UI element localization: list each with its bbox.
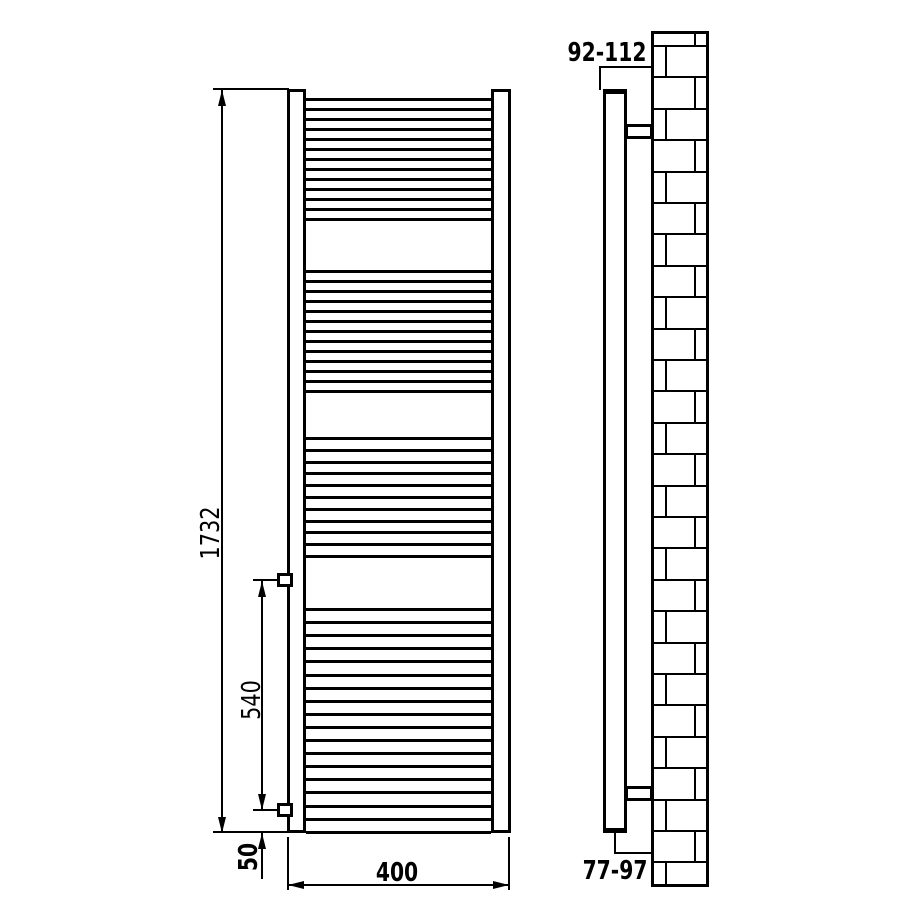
brick-course-line — [654, 233, 706, 235]
brick-joint-line — [665, 233, 667, 265]
radiator-installation-drawing: 1732 540 50 400 — [0, 0, 921, 921]
brick-course-line — [654, 547, 706, 549]
brick-course-line — [654, 453, 706, 455]
brick-course-line — [654, 642, 706, 644]
upper-bracket-side — [625, 124, 653, 139]
leader-line-vertical — [599, 66, 601, 90]
wall-clearance-bottom-label: 77-97 — [583, 858, 648, 884]
brick-joint-line — [694, 830, 696, 861]
brick-joint-line — [665, 547, 667, 579]
brick-joint-line — [694, 516, 696, 547]
brick-joint-line — [665, 861, 667, 884]
brick-joint-line — [694, 704, 696, 736]
brick-joint-line — [694, 390, 696, 422]
brick-joint-line — [694, 265, 696, 296]
brick-joint-line — [665, 108, 667, 139]
brick-course-line — [654, 76, 706, 78]
brick-course-line — [654, 108, 706, 110]
brick-joint-line — [665, 673, 667, 704]
brick-course-line — [654, 171, 706, 173]
brick-joint-line — [694, 76, 696, 108]
brick-joint-line — [694, 202, 696, 233]
brick-course-line — [654, 736, 706, 738]
brick-course-line — [654, 328, 706, 330]
brick-course-line — [654, 202, 706, 204]
brick-joint-line — [694, 579, 696, 610]
brick-course-line — [654, 704, 706, 706]
brick-course-line — [654, 45, 706, 47]
brick-course-line — [654, 390, 706, 392]
brick-course-line — [654, 799, 706, 801]
lower-bracket-side — [625, 786, 653, 801]
brick-joint-line — [665, 736, 667, 767]
brick-joint-line — [665, 171, 667, 202]
brick-course-line — [654, 516, 706, 518]
brick-joint-line — [694, 453, 696, 485]
brick-joint-line — [665, 485, 667, 516]
brick-joint-line — [665, 422, 667, 453]
brick-joint-line — [665, 45, 667, 76]
brick-course-line — [654, 861, 706, 863]
brick-course-line — [654, 579, 706, 581]
side-view: 92-112 77-97 — [0, 0, 921, 921]
brick-course-line — [654, 485, 706, 487]
brick-joint-line — [665, 359, 667, 390]
brick-joint-line — [694, 328, 696, 359]
brick-joint-line — [694, 34, 696, 45]
brick-joint-line — [694, 139, 696, 171]
brick-course-line — [654, 359, 706, 361]
radiator-profile — [603, 89, 627, 833]
brick-joint-line — [694, 642, 696, 673]
wall — [651, 31, 709, 887]
brick-joint-line — [665, 799, 667, 830]
brick-course-line — [654, 422, 706, 424]
brick-course-line — [654, 610, 706, 612]
brick-course-line — [654, 296, 706, 298]
leader-line-vertical — [614, 833, 616, 854]
brick-joint-line — [694, 767, 696, 799]
brick-course-line — [654, 830, 706, 832]
brick-joint-line — [665, 610, 667, 642]
leader-line-horizontal — [614, 852, 653, 854]
brick-course-line — [654, 139, 706, 141]
wall-clearance-top-label: 92-112 — [568, 40, 647, 66]
brick-course-line — [654, 767, 706, 769]
brick-course-line — [654, 673, 706, 675]
brick-joint-line — [665, 296, 667, 328]
brick-course-line — [654, 265, 706, 267]
